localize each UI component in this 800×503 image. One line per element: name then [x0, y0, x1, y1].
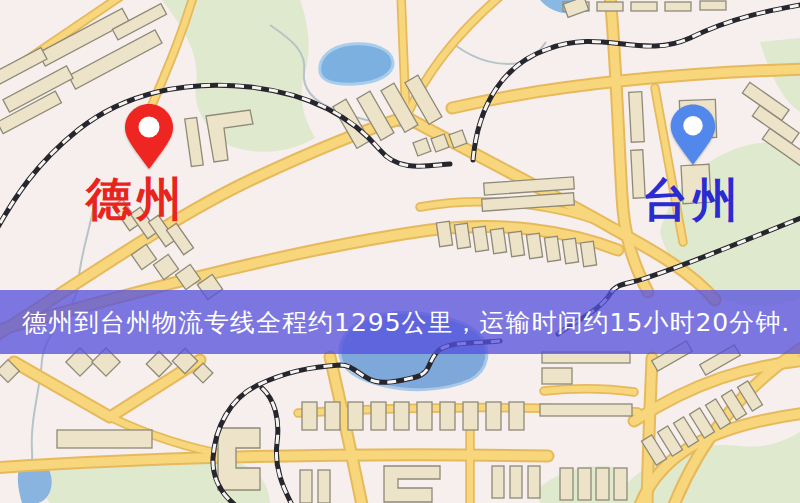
- route-info-text: 德州到台州物流专线全程约1295公里，运输时间约15小时20分钟.: [0, 306, 790, 339]
- map-canvas: [0, 0, 800, 503]
- destination-pin[interactable]: [668, 102, 718, 168]
- origin-pin[interactable]: [122, 102, 176, 172]
- destination-city-label: 台州: [642, 177, 742, 223]
- route-info-banner: 德州到台州物流专线全程约1295公里，运输时间约15小时20分钟.: [0, 290, 800, 354]
- origin-city-label: 德州: [86, 176, 186, 222]
- destination-pin-icon: [668, 102, 718, 168]
- origin-pin-icon: [122, 102, 176, 172]
- map-view: 德州到台州物流专线全程约1295公里，运输时间约15小时20分钟. 德州 台州: [0, 0, 800, 503]
